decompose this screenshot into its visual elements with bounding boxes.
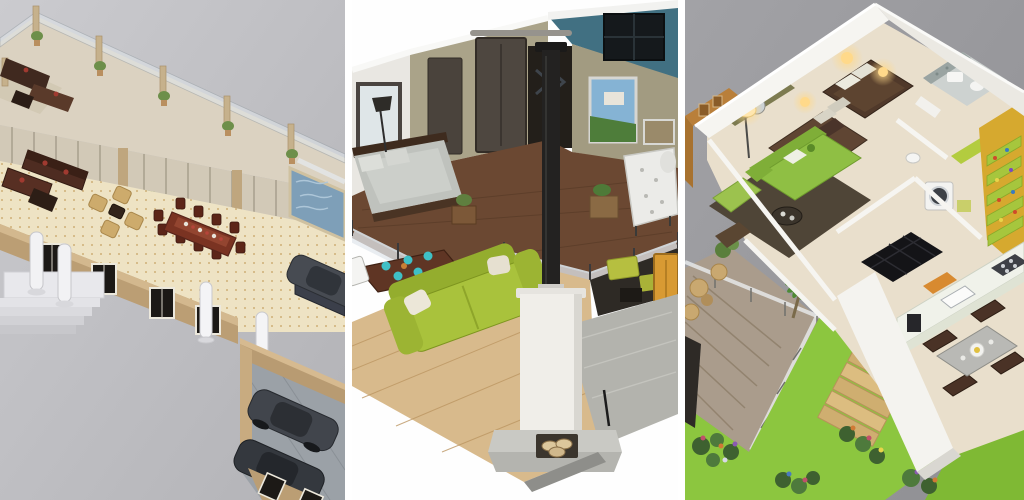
loft-render [352, 0, 678, 500]
panel-divider [678, 0, 685, 500]
penthouse-render [0, 0, 345, 500]
landscape-painting [590, 78, 636, 142]
coffee-maker [907, 314, 921, 332]
apartment-render [685, 0, 1024, 500]
panel-apartment-plan: 3D apartment floor plan on grey: two bed… [685, 0, 1024, 500]
small-art [644, 120, 674, 144]
panel-divider [345, 0, 352, 500]
panel-loft-cutaway: 3D cutaway render of a two-storey loft o… [352, 0, 678, 500]
panel-penthouse-plan: Isometric 3D penthouse floor plan on gre… [0, 0, 345, 500]
floor-plan-collage: Isometric 3D penthouse floor plan on gre… [0, 0, 1024, 500]
toilet [906, 153, 920, 163]
clerestory-windows [604, 14, 664, 60]
